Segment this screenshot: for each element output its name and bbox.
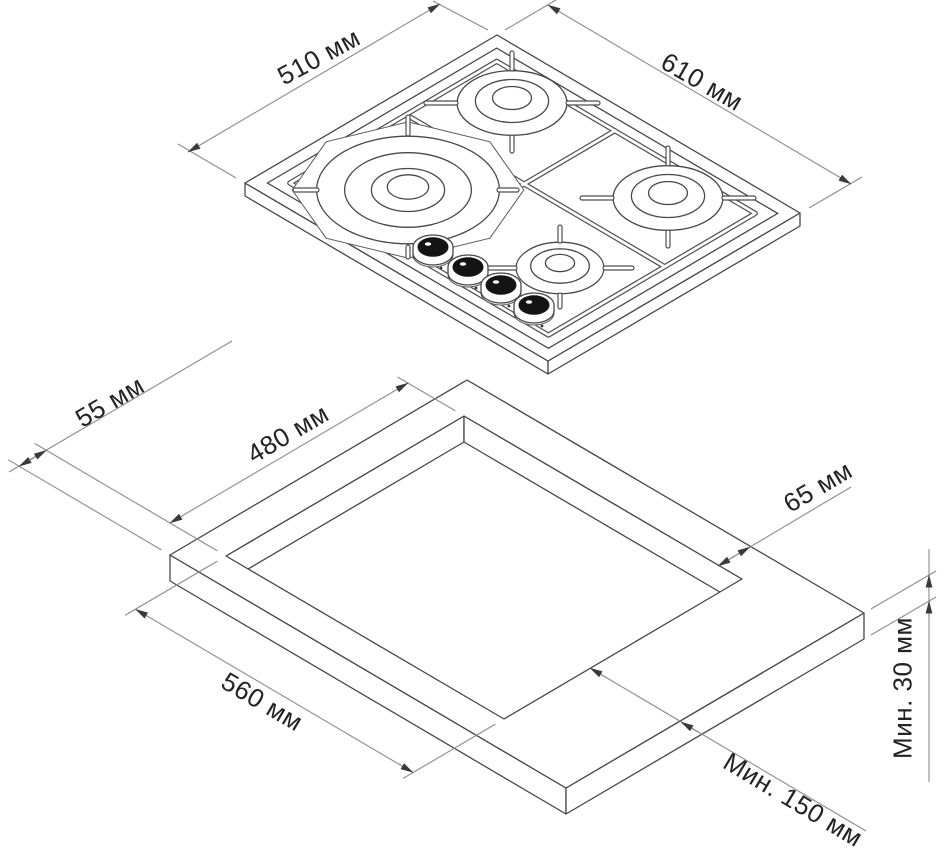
- cutout-inner-wall-right: [464, 416, 742, 605]
- hob-figure: [178, 0, 862, 374]
- hob-burner-front: [516, 242, 604, 294]
- hob-burner-top: [457, 71, 567, 136]
- hob-burner-large: [292, 122, 524, 258]
- hob-burner-right: [613, 166, 723, 231]
- dim-label-worktop-thickness-min: Мин. 30 мм: [888, 617, 919, 759]
- worktop-figure: [8, 341, 936, 831]
- installation-diagram: 510 мм 610 мм 55 мм 480 мм 65 мм 560 мм …: [0, 0, 949, 868]
- diagram-line-art: [0, 0, 949, 868]
